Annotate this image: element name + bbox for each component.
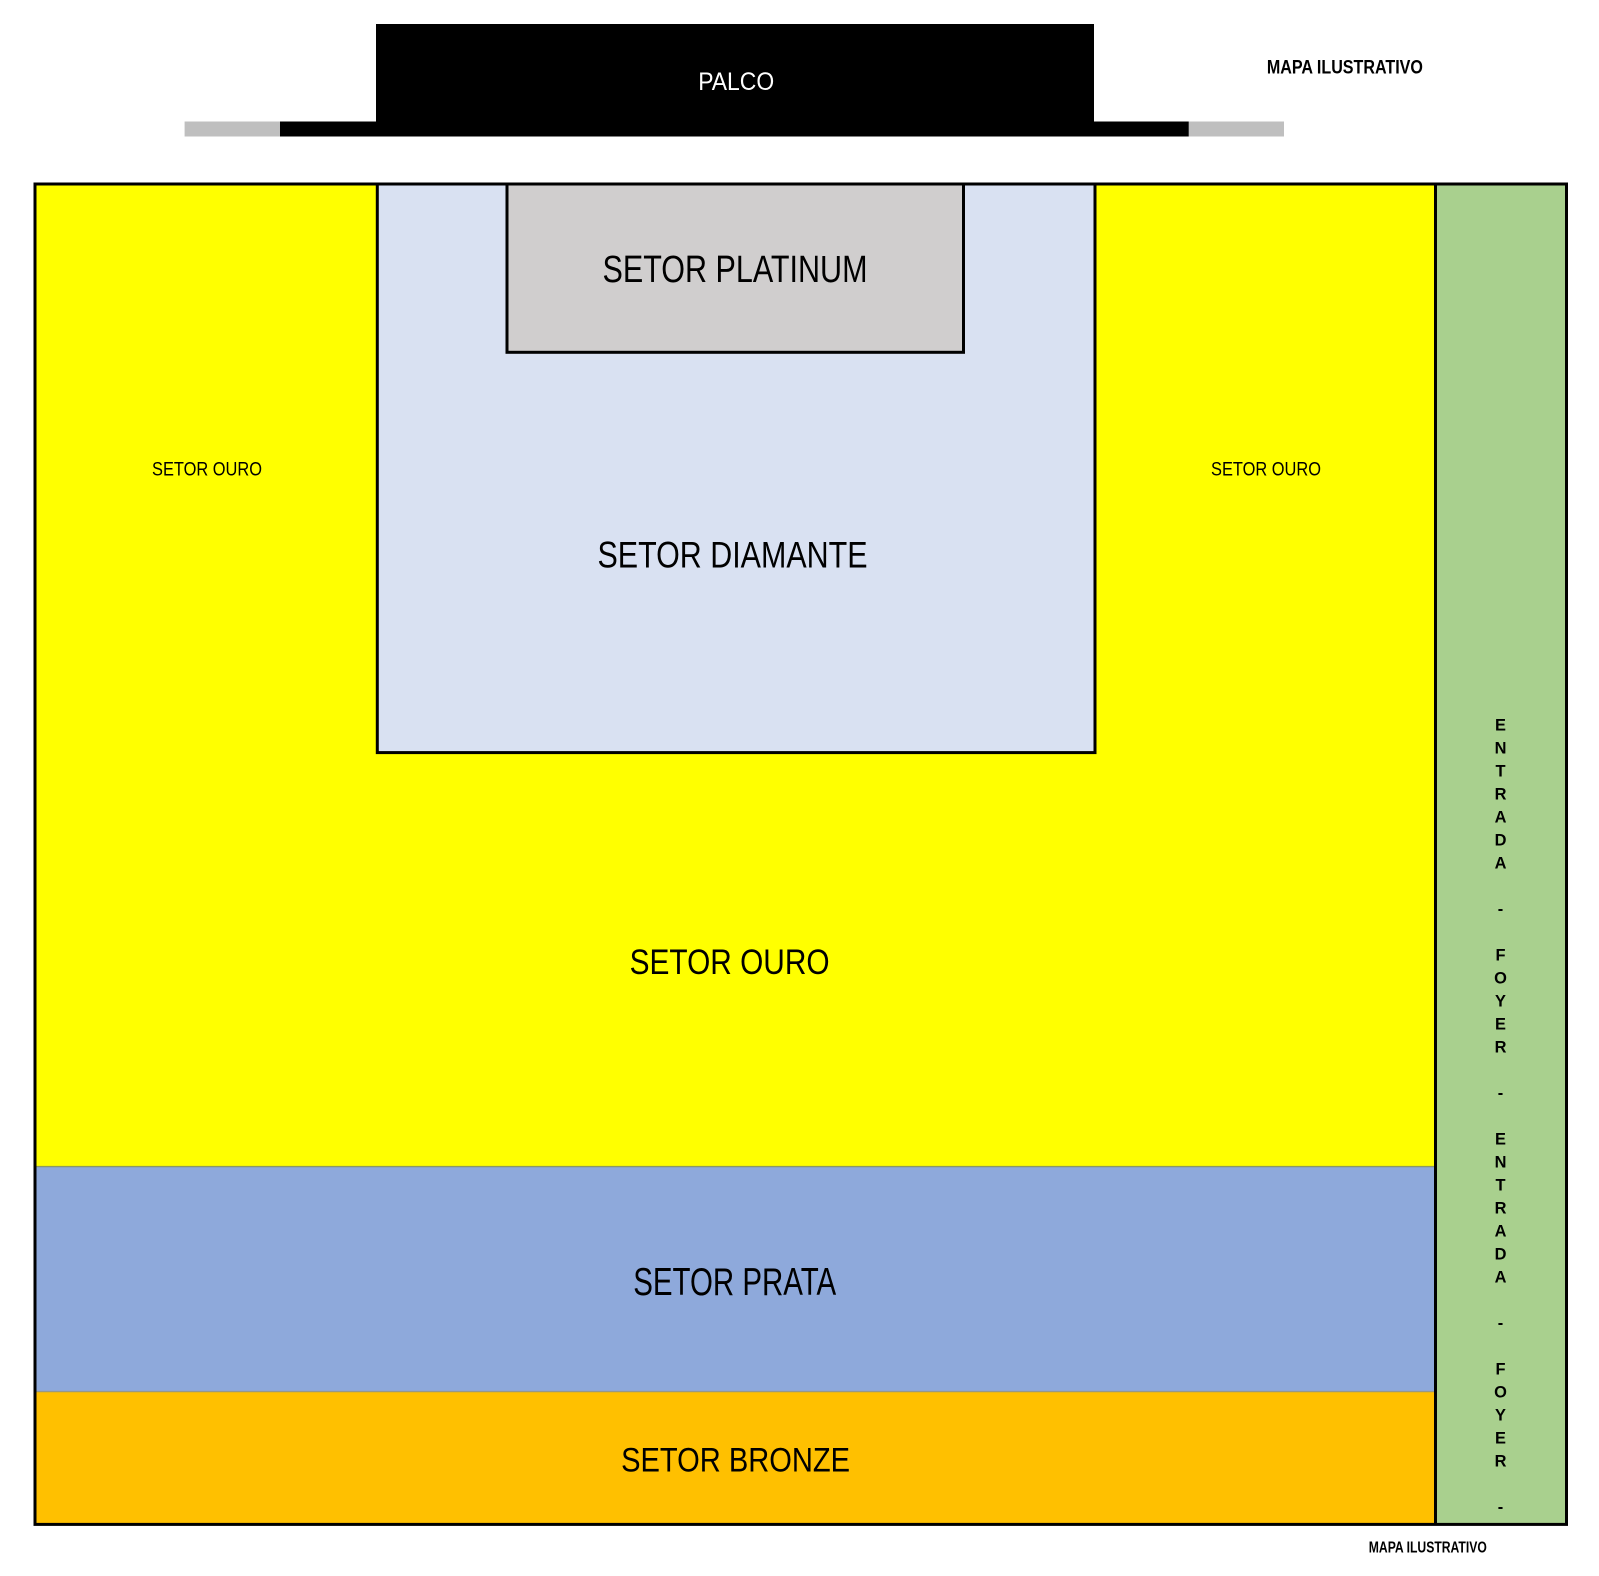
svg-text:E: E [1495,1131,1506,1149]
svg-text:-: - [1498,901,1503,919]
svg-text:SETOR OURO: SETOR OURO [1211,459,1321,480]
svg-text:A: A [1495,1223,1507,1241]
svg-text:E: E [1495,717,1506,735]
svg-text:MAPA ILUSTRATIVO: MAPA ILUSTRATIVO [1267,58,1423,79]
svg-text:-: - [1498,1315,1503,1333]
svg-text:A: A [1495,1269,1507,1287]
svg-text:F: F [1495,1361,1505,1379]
svg-text:E: E [1495,1016,1506,1034]
svg-text:SETOR DIAMANTE: SETOR DIAMANTE [598,533,868,575]
svg-text:F: F [1495,947,1505,965]
svg-text:R: R [1495,1039,1507,1057]
svg-text:R: R [1495,786,1507,804]
svg-text:R: R [1495,1453,1507,1471]
svg-text:SETOR OURO: SETOR OURO [152,459,262,480]
svg-text:O: O [1494,1384,1507,1402]
svg-text:A: A [1495,809,1507,827]
svg-text:D: D [1495,832,1507,850]
svg-text:MAPA ILUSTRATIVO: MAPA ILUSTRATIVO [1369,1540,1487,1557]
svg-text:T: T [1495,1177,1505,1195]
svg-text:R: R [1495,1200,1507,1218]
svg-text:O: O [1494,970,1507,988]
svg-text:PALCO: PALCO [698,68,774,96]
svg-text:-: - [1498,1499,1503,1517]
svg-text:Y: Y [1495,1407,1506,1425]
svg-text:E: E [1495,1430,1506,1448]
svg-text:SETOR OURO: SETOR OURO [630,942,830,982]
svg-text:N: N [1495,740,1507,758]
svg-text:SETOR BRONZE: SETOR BRONZE [621,1442,850,1480]
svg-text:T: T [1495,763,1505,781]
svg-text:Y: Y [1495,993,1506,1011]
svg-text:SETOR PLATINUM: SETOR PLATINUM [603,248,868,291]
svg-text:-: - [1498,1085,1503,1103]
svg-text:A: A [1495,855,1507,873]
svg-text:SETOR PRATA: SETOR PRATA [633,1261,836,1304]
svg-text:N: N [1495,1154,1507,1172]
svg-text:D: D [1495,1246,1507,1264]
